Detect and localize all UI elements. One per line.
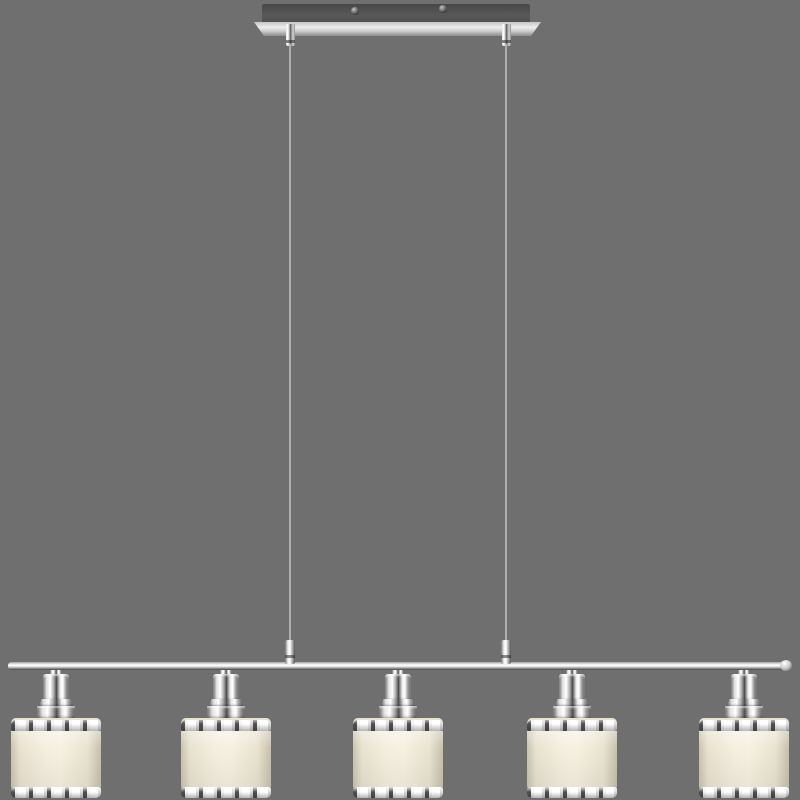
ceiling-mount-plate	[254, 22, 541, 36]
shade-fabric-body	[699, 731, 789, 787]
shade-fabric-body	[181, 731, 271, 787]
shade-fabric-body	[353, 731, 443, 787]
shade-top-chrome-ring	[11, 718, 101, 731]
cable-gripper	[286, 24, 295, 46]
canopy-screw-right	[439, 5, 447, 13]
drum-shade	[353, 718, 443, 798]
drum-shade	[699, 718, 789, 798]
socket-upper-cylinder	[385, 674, 411, 701]
socket-upper-cylinder	[731, 674, 757, 701]
drum-shade	[11, 718, 101, 798]
shade-top-chrome-ring	[353, 718, 443, 731]
suspension-cable	[505, 44, 507, 642]
shade-bottom-chrome-ring	[527, 787, 617, 798]
shade-fabric-body	[527, 731, 617, 787]
suspension-cable	[289, 44, 291, 642]
shade-top-chrome-ring	[181, 718, 271, 731]
shade-top-chrome-ring	[699, 718, 789, 731]
shade-bottom-chrome-ring	[699, 787, 789, 798]
bar-cable-ferrule	[285, 640, 295, 664]
bar-end-cap	[780, 660, 792, 671]
shade-bottom-chrome-ring	[181, 787, 271, 798]
socket-upper-cylinder	[43, 674, 69, 701]
lamp-unit	[353, 666, 443, 798]
drum-shade	[181, 718, 271, 798]
socket-upper-cylinder	[559, 674, 585, 701]
pendant-lamp-product-photo	[0, 0, 800, 800]
shade-bottom-chrome-ring	[11, 787, 101, 798]
lamp-unit	[11, 666, 101, 798]
socket-upper-cylinder	[213, 674, 239, 701]
shade-fabric-body	[11, 731, 101, 787]
canopy-screw-left	[351, 7, 359, 15]
ceiling-canopy	[262, 4, 530, 23]
shade-bottom-chrome-ring	[353, 787, 443, 798]
bar-cable-ferrule	[501, 640, 511, 664]
cable-gripper	[502, 24, 511, 46]
lamp-unit	[527, 666, 617, 798]
shade-top-chrome-ring	[527, 718, 617, 731]
horizontal-chrome-bar	[8, 662, 790, 670]
drum-shade	[527, 718, 617, 798]
lamp-unit	[699, 666, 789, 798]
lamp-unit	[181, 666, 271, 798]
